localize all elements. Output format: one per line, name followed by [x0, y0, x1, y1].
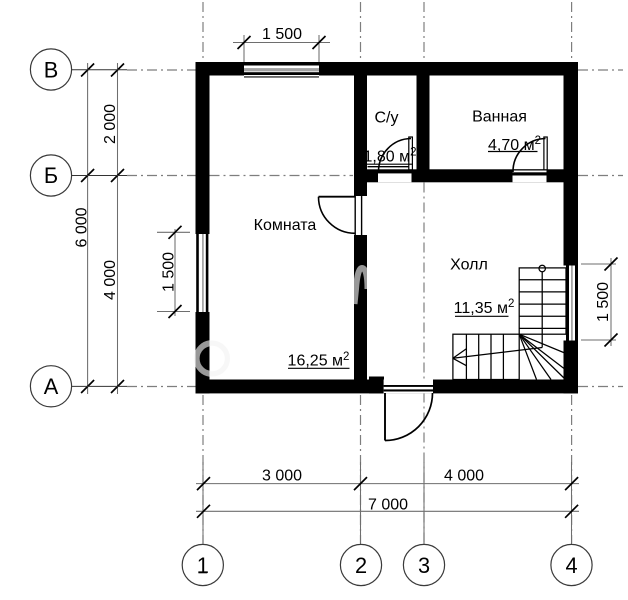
svg-text:1 500: 1 500	[595, 282, 612, 322]
svg-text:16,25 м2: 16,25 м2	[288, 351, 350, 370]
svg-text:4 000: 4 000	[444, 468, 484, 485]
svg-text:С/у: С/у	[375, 110, 399, 127]
svg-text:1: 1	[197, 553, 209, 578]
svg-text:3 000: 3 000	[262, 468, 302, 485]
svg-text:11,35 м2: 11,35 м2	[454, 298, 515, 317]
svg-text:Ванная: Ванная	[472, 108, 527, 125]
svg-text:Холл: Холл	[450, 256, 488, 273]
svg-text:1 500: 1 500	[262, 26, 302, 43]
svg-text:В: В	[44, 57, 59, 82]
svg-text:4: 4	[565, 553, 577, 578]
svg-text:4 000: 4 000	[102, 260, 119, 300]
svg-text:3: 3	[418, 553, 430, 578]
svg-text:6 000: 6 000	[74, 207, 91, 247]
svg-text:1 500: 1 500	[161, 252, 178, 292]
svg-text:2: 2	[355, 553, 367, 578]
svg-text:1,80 м2: 1,80 м2	[364, 147, 417, 166]
svg-text:2 000: 2 000	[102, 104, 119, 144]
svg-text:Б: Б	[44, 163, 58, 188]
svg-text:А: А	[44, 374, 59, 399]
svg-text:7 000: 7 000	[368, 496, 408, 513]
svg-text:Комната: Комната	[254, 217, 317, 234]
